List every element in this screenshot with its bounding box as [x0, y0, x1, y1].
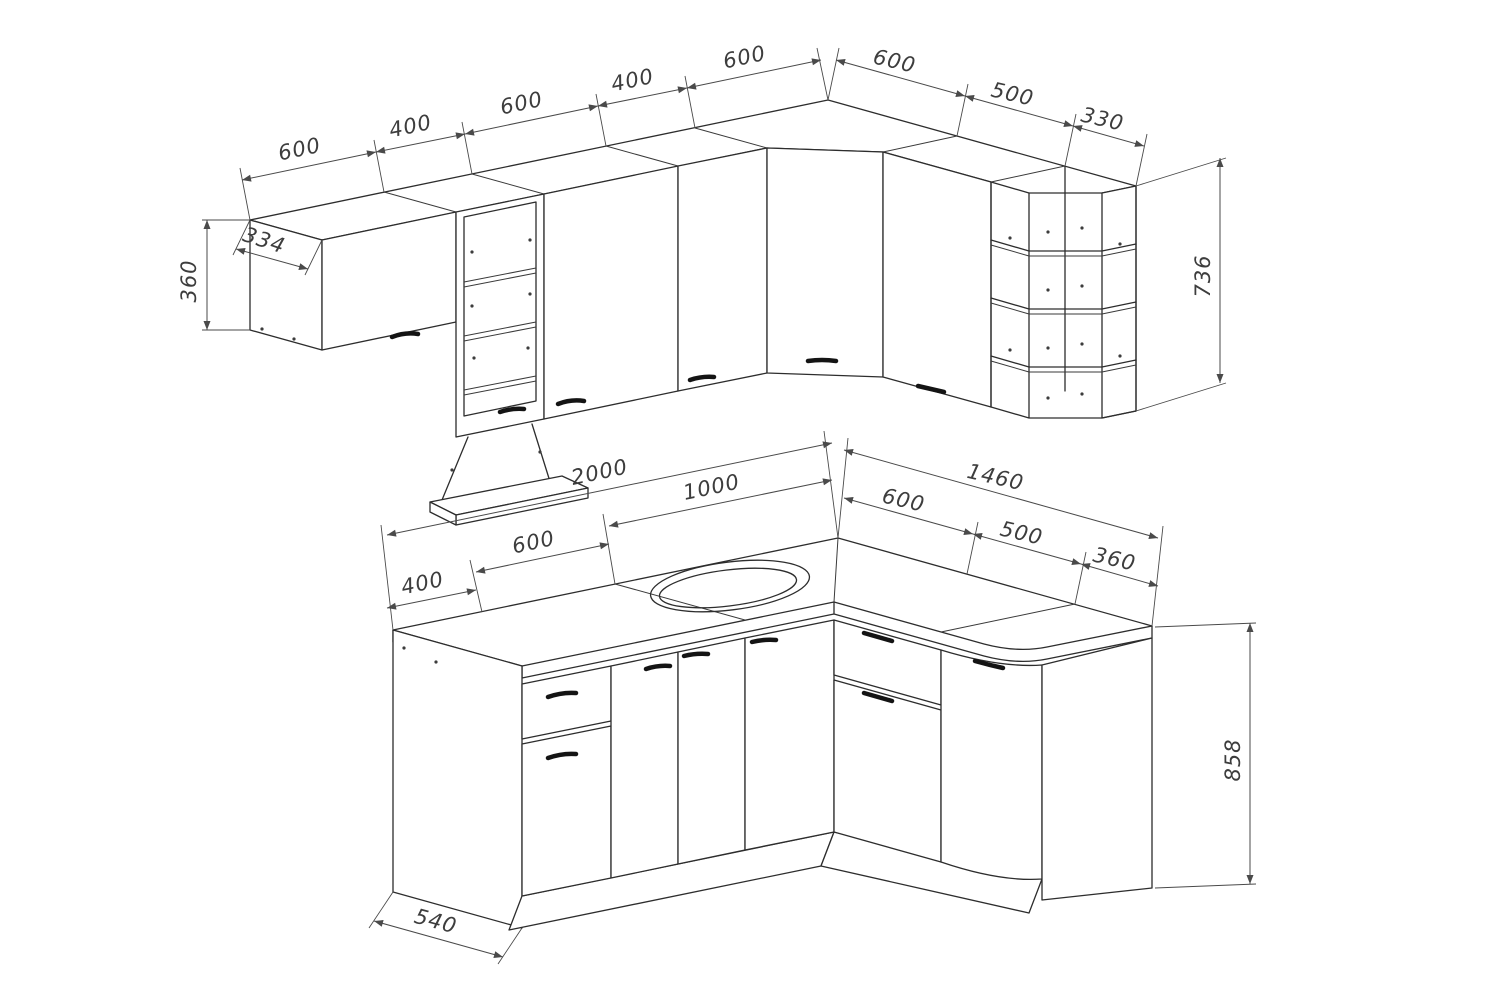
dim-label-upper-left-1: 400: [387, 110, 434, 142]
dim-label-lower-left-1: 600: [510, 526, 557, 558]
base-sink-door: [745, 620, 834, 850]
shelf-pin-dot: [470, 304, 473, 307]
base-400-drawer-unit: [522, 666, 611, 896]
shelf-pin-dot: [1080, 342, 1083, 345]
fitting-dot: [450, 468, 453, 471]
shelf-pin-dot: [1008, 236, 1011, 239]
upper-corner-handle: [808, 360, 836, 361]
shelf-pin-dot: [1046, 396, 1049, 399]
upper-500-cabinet: [883, 152, 991, 407]
dim-label-lower-left-3: 2000: [569, 454, 630, 489]
upper-open-shelf-unit: [991, 166, 1136, 418]
shelf-pin-dot: [1080, 284, 1083, 287]
shelf-pin-dot: [1008, 348, 1011, 351]
upper-glass-door: [456, 194, 544, 437]
dim-label-360: 360: [177, 259, 201, 302]
shelf-pin-dot: [528, 292, 531, 295]
shelf-pin-dot: [1080, 392, 1083, 395]
dim-label-858: 858: [1221, 738, 1245, 781]
shelf-pin-dot: [470, 250, 473, 253]
base-600-door-right: [678, 638, 745, 864]
dim-line-upper-left-3: [598, 88, 687, 106]
dim-label-lower-right-2: 360: [1091, 543, 1138, 576]
upper-liftup-handle: [392, 333, 418, 337]
upper-glass-cabinet: [456, 194, 544, 437]
base-sink-door-handle: [752, 640, 776, 642]
upper-400-door: [678, 148, 767, 391]
dim-label-upper-left-2: 600: [498, 87, 545, 119]
base-curved-end-unit: [941, 638, 1152, 900]
fitting-dot: [434, 660, 437, 663]
dim-label-upper-right-2: 330: [1079, 103, 1126, 136]
fitting-dot: [538, 450, 541, 453]
fitting-dot: [292, 337, 295, 340]
dim-label-lower-left-2: 1000: [681, 469, 742, 504]
dim-label-736: 736: [1191, 254, 1215, 297]
shelf-pin-dot: [1046, 346, 1049, 349]
base-sink-corner-unit: [745, 620, 834, 850]
shelf-pin-dot: [528, 238, 531, 241]
base-600-door-right-handle: [684, 654, 708, 656]
dim-label-upper-right-1: 500: [989, 78, 1036, 111]
shelf-pin-dot: [526, 346, 529, 349]
upper-600-cabinet: [544, 166, 678, 419]
base-600-door-left: [611, 652, 678, 878]
base-curved-door: [941, 650, 1042, 879]
dim-label-upper-left-0: 600: [276, 133, 323, 165]
shelf-unit-right-panel: [1102, 186, 1136, 418]
upper-corner-door: [767, 148, 883, 377]
dim-line-upper-left-1: [376, 134, 465, 152]
dim-label-lower-right-0: 600: [880, 484, 927, 517]
upper-wall-cabinets: [250, 100, 1136, 525]
base-cabinets: [393, 538, 1152, 930]
shelf-pin-dot: [1046, 288, 1049, 291]
shelf-pin-dot: [1046, 230, 1049, 233]
fitting-dot: [402, 646, 405, 649]
dim-label-lower-left-0: 400: [399, 567, 446, 599]
dim-label-upper-left-4: 600: [721, 41, 768, 73]
upper-600-door: [544, 166, 678, 419]
dim-label-lower-right-3: 1460: [965, 459, 1026, 495]
shelf-pin-dot: [1118, 354, 1121, 357]
fitting-dot: [260, 327, 263, 330]
base-600-unit: [611, 638, 745, 878]
base-400-door: [522, 726, 611, 896]
kitchen-technical-drawing: 600 400 600 400 600 600 500 330 360 334 …: [0, 0, 1500, 1000]
dim-label-upper-left-3: 400: [609, 64, 656, 96]
base-left-side-panel: [393, 630, 522, 928]
base-500-drawer-unit: [834, 620, 941, 862]
drawing-canvas: 600 400 600 400 600 600 500 330 360 334 …: [0, 0, 1500, 1000]
base-500-door: [834, 680, 941, 862]
upper-400-cabinet: [678, 148, 767, 391]
upper-corner-cabinet: [767, 148, 883, 377]
shelf-pin-dot: [1118, 242, 1121, 245]
base-right-end-panel: [1042, 638, 1152, 900]
upper-500-door: [883, 152, 991, 407]
shelf-pin-dot: [1080, 226, 1083, 229]
shelf-pin-dot: [472, 356, 475, 359]
dim-label-lower-right-1: 500: [998, 517, 1045, 550]
dim-label-upper-right-0: 600: [871, 45, 918, 78]
